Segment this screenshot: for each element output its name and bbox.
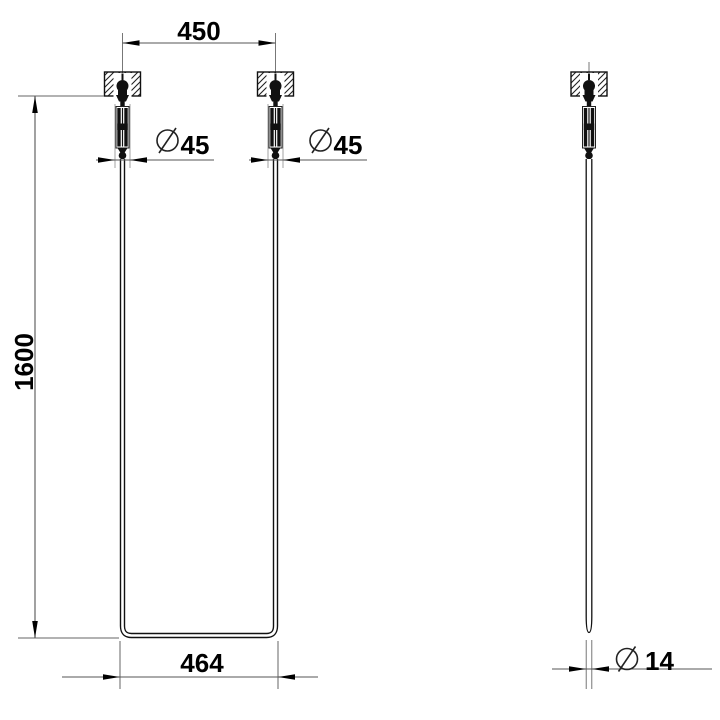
hanger-ball bbox=[272, 152, 280, 160]
dim-text-464: 464 bbox=[180, 648, 224, 678]
diameter-symbol-icon bbox=[310, 128, 331, 153]
dimension-450: 450 bbox=[123, 16, 276, 46]
arrow-left-icon bbox=[123, 40, 140, 46]
hanger-neck bbox=[587, 102, 591, 107]
technical-drawing: 450 bbox=[0, 0, 720, 720]
arrow-left-icon bbox=[592, 666, 609, 672]
arrow-left-icon bbox=[278, 674, 295, 680]
hanger-collar bbox=[583, 95, 596, 102]
arrow-right-icon bbox=[569, 666, 586, 672]
arrow-left-icon bbox=[283, 157, 300, 163]
front-view: 450 bbox=[9, 16, 367, 689]
diameter-symbol-icon bbox=[617, 647, 638, 672]
u-rod-inner bbox=[123, 159, 276, 636]
hanger-ball bbox=[119, 152, 127, 160]
hanger-ball bbox=[585, 152, 593, 160]
turnbuckle-crossbar bbox=[270, 124, 280, 131]
hanger-knob-waist bbox=[118, 90, 127, 95]
turnbuckle-crossbar bbox=[117, 124, 127, 131]
side-rod bbox=[586, 159, 592, 633]
dim-text-1600: 1600 bbox=[9, 333, 39, 391]
diameter-symbol-icon bbox=[157, 128, 178, 153]
dimension-1600: 1600 bbox=[9, 96, 119, 638]
side-view: 14 bbox=[552, 62, 712, 689]
arrow-right-icon bbox=[259, 40, 276, 46]
arrow-right-icon bbox=[103, 674, 120, 680]
hanger-knob-waist bbox=[585, 90, 594, 95]
dimension-diameter-14: 14 bbox=[552, 640, 712, 689]
dim-text-45-left: 45 bbox=[181, 130, 210, 160]
arrow-down-icon bbox=[32, 621, 38, 638]
arrow-up-icon bbox=[32, 96, 38, 113]
hanger-knob-waist bbox=[271, 90, 280, 95]
arrow-right-icon bbox=[98, 157, 115, 163]
turnbuckle-crossbar bbox=[584, 124, 594, 131]
hanger-collar bbox=[269, 95, 282, 102]
hanger-right bbox=[267, 73, 285, 168]
dim-text-45-right: 45 bbox=[334, 130, 363, 160]
hanger-side bbox=[580, 73, 598, 159]
hanger-neck bbox=[120, 102, 124, 107]
dimension-diameter-45-right: 45 bbox=[249, 128, 367, 163]
dimension-464: 464 bbox=[62, 641, 318, 689]
arrow-left-icon bbox=[130, 157, 147, 163]
dim-text-450: 450 bbox=[177, 16, 220, 46]
technical-drawing-page: 450 bbox=[0, 0, 720, 720]
dimension-diameter-45-left: 45 bbox=[96, 128, 214, 163]
arrow-right-icon bbox=[251, 157, 268, 163]
u-rod-outer bbox=[123, 159, 276, 636]
hanger-collar bbox=[116, 95, 129, 102]
dim-text-14: 14 bbox=[645, 646, 674, 676]
hanger-neck bbox=[273, 102, 277, 107]
u-shaped-rod bbox=[123, 159, 276, 636]
hanger-left bbox=[114, 73, 132, 168]
